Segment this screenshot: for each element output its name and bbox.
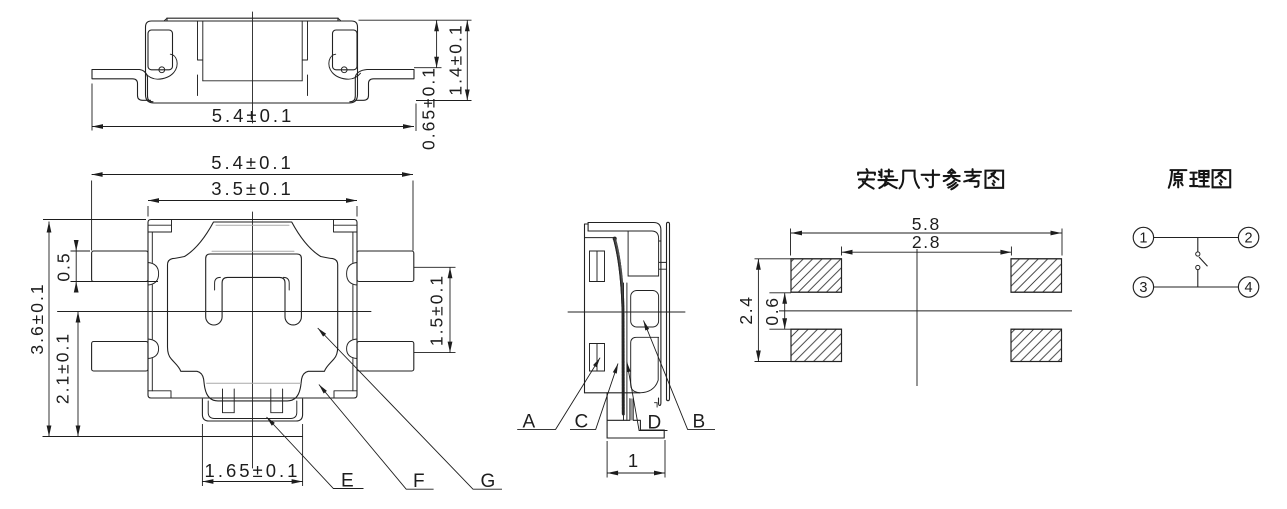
- svg-text:1: 1: [628, 450, 641, 471]
- svg-text:2.8: 2.8: [912, 232, 941, 252]
- svg-text:0.5: 0.5: [54, 251, 74, 281]
- svg-text:1.4±0.1: 1.4±0.1: [446, 23, 466, 95]
- svg-text:4: 4: [1245, 280, 1253, 296]
- svg-text:D: D: [648, 413, 662, 434]
- svg-text:5.8: 5.8: [912, 214, 941, 234]
- svg-text:B: B: [693, 412, 706, 433]
- svg-text:3: 3: [1139, 280, 1147, 296]
- svg-text:0.6: 0.6: [762, 296, 782, 325]
- svg-text:0.65±0.1: 0.65±0.1: [419, 66, 439, 150]
- svg-text:A: A: [523, 412, 536, 433]
- svg-text:3.5±0.1: 3.5±0.1: [211, 178, 294, 199]
- svg-text:E: E: [341, 471, 354, 492]
- svg-text:5.4±0.1: 5.4±0.1: [212, 105, 295, 126]
- svg-text:1.65±0.1: 1.65±0.1: [205, 460, 301, 481]
- svg-text:2: 2: [1245, 231, 1253, 247]
- svg-text:5.4±0.1: 5.4±0.1: [211, 152, 294, 173]
- svg-text:2.4: 2.4: [736, 295, 756, 324]
- svg-text:3.6±0.1: 3.6±0.1: [27, 282, 47, 354]
- svg-text:1: 1: [1139, 231, 1147, 247]
- svg-text:C: C: [575, 412, 589, 433]
- svg-text:1.5±0.1: 1.5±0.1: [427, 274, 447, 346]
- svg-text:F: F: [413, 471, 425, 492]
- svg-text:2.1±0.1: 2.1±0.1: [52, 332, 72, 404]
- svg-text:G: G: [481, 471, 496, 492]
